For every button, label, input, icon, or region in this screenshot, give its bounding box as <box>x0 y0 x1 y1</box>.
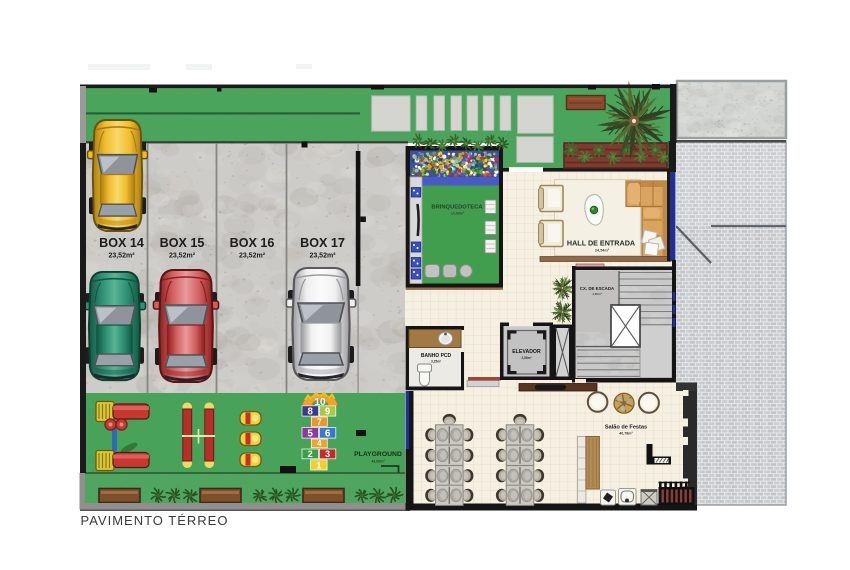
svg-text:BANHO PCD: BANHO PCD <box>421 353 452 359</box>
svg-text:14,88m²: 14,88m² <box>451 212 465 216</box>
svg-text:3,25m²: 3,25m² <box>431 360 441 364</box>
svg-text:7: 7 <box>317 417 322 427</box>
svg-text:23,52m²: 23,52m² <box>169 253 196 260</box>
svg-text:24,54m²: 24,54m² <box>595 249 610 253</box>
svg-text:BOX 14: BOX 14 <box>99 236 144 250</box>
svg-text:23,52m²: 23,52m² <box>239 253 266 260</box>
svg-text:ELEVADOR: ELEVADOR <box>512 349 541 355</box>
svg-text:2,80m²: 2,80m² <box>521 356 531 360</box>
svg-text:BOX 15: BOX 15 <box>160 236 205 250</box>
svg-text:5: 5 <box>307 429 313 440</box>
svg-text:6: 6 <box>325 429 331 440</box>
svg-text:23,52m²: 23,52m² <box>309 253 336 260</box>
svg-text:23,52m²: 23,52m² <box>108 253 135 260</box>
svg-text:1: 1 <box>316 460 322 471</box>
svg-text:CX. DE ESCADA: CX. DE ESCADA <box>580 286 615 291</box>
svg-text:43,80m²: 43,80m² <box>371 460 385 464</box>
svg-text:4: 4 <box>317 439 322 448</box>
svg-text:BOX 17: BOX 17 <box>300 236 345 250</box>
svg-text:40,78m²: 40,78m² <box>619 432 633 436</box>
svg-text:3: 3 <box>325 449 330 459</box>
svg-text:PAVIMENTO TÉRREO: PAVIMENTO TÉRREO <box>81 513 229 528</box>
svg-text:8: 8 <box>308 407 314 418</box>
svg-text:PLAYGROUND: PLAYGROUND <box>354 451 402 458</box>
svg-text:BOX 16: BOX 16 <box>230 236 275 250</box>
svg-text:Salão de Festas: Salão de Festas <box>605 425 647 431</box>
svg-text:4,65m²: 4,65m² <box>592 292 602 296</box>
svg-text:9: 9 <box>325 407 331 418</box>
svg-text:2: 2 <box>308 449 313 459</box>
svg-text:HALL DE ENTRADA: HALL DE ENTRADA <box>567 239 635 248</box>
svg-text:BRINQUEDOTECA: BRINQUEDOTECA <box>431 205 483 211</box>
